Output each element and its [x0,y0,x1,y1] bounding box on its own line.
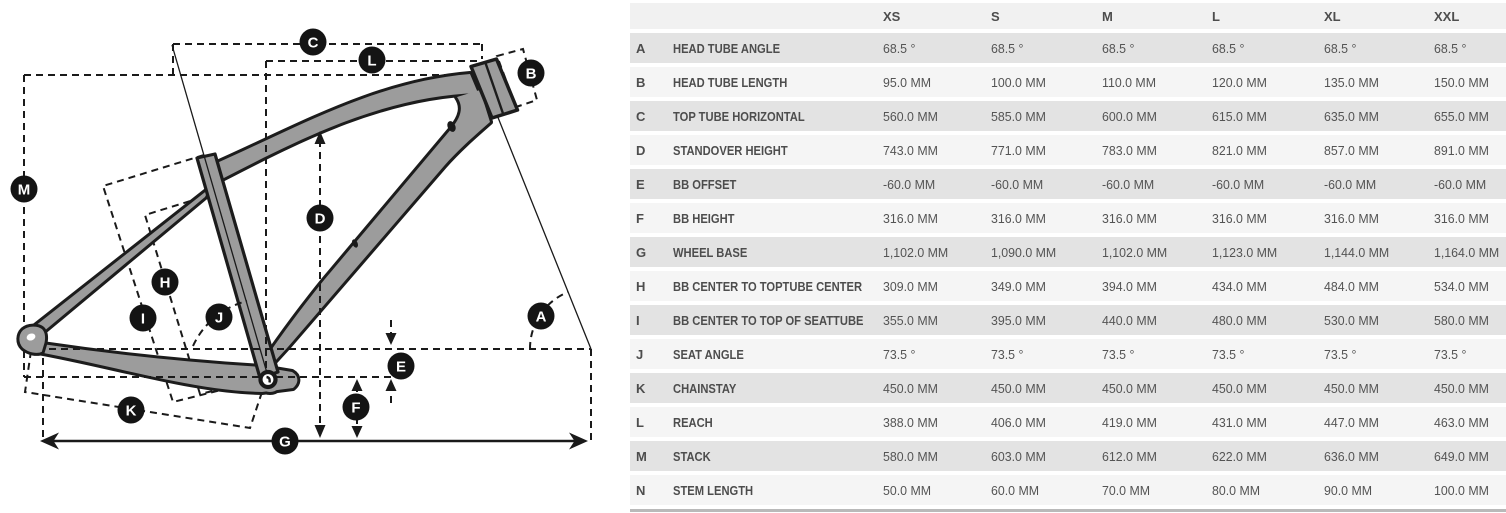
svg-text:C: C [308,35,319,52]
svg-text:B: B [526,66,537,83]
svg-text:M: M [18,182,31,199]
svg-text:J: J [215,310,223,327]
svg-text:H: H [160,275,171,292]
svg-text:K: K [126,403,137,420]
svg-text:L: L [367,53,376,70]
svg-text:D: D [315,211,326,228]
svg-text:I: I [141,311,145,328]
svg-text:E: E [396,359,406,376]
svg-text:G: G [279,434,291,451]
svg-text:A: A [536,309,547,326]
svg-text:F: F [351,400,360,417]
